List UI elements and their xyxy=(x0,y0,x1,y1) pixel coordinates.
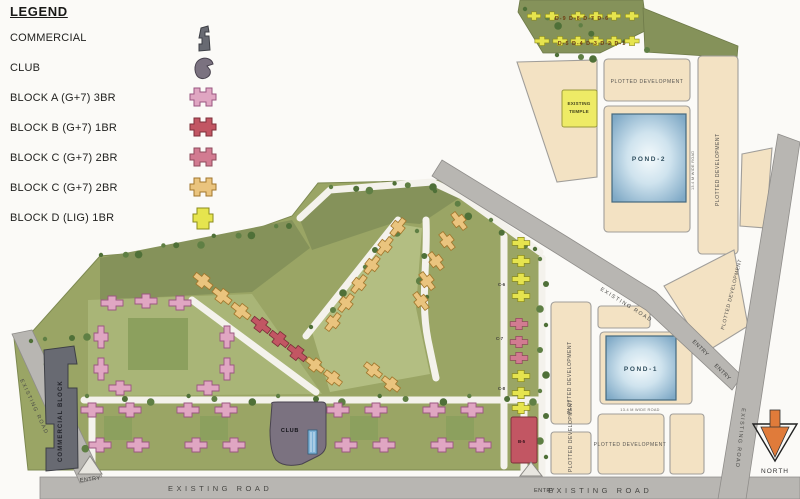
tree xyxy=(555,53,559,57)
tree xyxy=(405,182,411,188)
tree xyxy=(579,23,583,27)
block-d-icon xyxy=(186,205,222,232)
tree xyxy=(529,398,537,406)
tree xyxy=(313,396,319,402)
tree xyxy=(330,307,336,313)
plotted-development-label: PLOTTED DEVELOPMENT xyxy=(715,133,721,206)
tree xyxy=(378,394,382,398)
legend-title: LEGEND xyxy=(10,4,222,19)
wide-road-label: 13.4 M WIDE ROAD xyxy=(620,408,659,412)
tree xyxy=(309,325,313,329)
tree xyxy=(536,305,544,313)
parcel-low-right xyxy=(670,414,704,474)
existing-road-label: EXISTING ROAD xyxy=(168,484,272,493)
commercial-icon xyxy=(186,25,222,52)
legend-item-block-b: BLOCK B (G+7) 1BR xyxy=(10,113,222,143)
tree xyxy=(504,396,510,402)
club-pool xyxy=(308,430,317,454)
tree xyxy=(433,189,437,193)
commercial-block-label: COMMERCIAL BLOCK xyxy=(58,380,64,462)
tree xyxy=(554,22,562,30)
tree xyxy=(544,323,548,327)
d-block-area xyxy=(518,0,738,58)
tree xyxy=(211,396,217,402)
tree xyxy=(99,253,103,257)
tree xyxy=(543,281,549,287)
tree xyxy=(186,394,190,398)
tree xyxy=(538,389,542,393)
plotted-development-label: PLOTTED DEVELOPMENT xyxy=(611,79,684,85)
tree xyxy=(212,234,216,238)
tree xyxy=(366,187,374,195)
entry-label: ENTRY xyxy=(534,488,555,494)
tree xyxy=(85,394,89,398)
tree xyxy=(578,54,584,60)
tree xyxy=(286,223,292,229)
tree xyxy=(276,394,280,398)
tree xyxy=(467,394,471,398)
tree xyxy=(353,186,359,192)
tree xyxy=(538,257,542,261)
tree xyxy=(537,347,543,353)
legend-item-block-c: BLOCK C (G+7) 2BR xyxy=(10,143,222,173)
tree xyxy=(122,396,128,402)
tree xyxy=(274,224,278,228)
master-plan-page: EXISTING ROAD EXISTING ROAD EXISTING ROA… xyxy=(0,0,800,499)
legend-item-block-d: BLOCK D (LIG) 1BR xyxy=(10,203,222,233)
tree xyxy=(249,398,257,406)
tree xyxy=(415,229,419,233)
tree xyxy=(329,185,333,189)
tree xyxy=(403,396,409,402)
block-c8-label: C-8 xyxy=(498,386,506,391)
tree xyxy=(197,241,205,249)
tree xyxy=(644,47,650,53)
tree xyxy=(69,335,75,341)
legend-item-block-a: BLOCK A (G+7) 3BR xyxy=(10,83,222,113)
tree xyxy=(533,247,537,251)
tree xyxy=(82,445,90,453)
plotted-development-label: PLOTTED DEVELOPMENT xyxy=(568,399,574,472)
tree xyxy=(544,455,548,459)
tree xyxy=(236,233,242,239)
tree xyxy=(455,201,461,207)
tree xyxy=(421,253,427,259)
tree xyxy=(543,413,549,419)
tree xyxy=(489,218,493,222)
tree xyxy=(499,230,505,236)
tree xyxy=(135,251,143,259)
legend-item-block-c-orange: BLOCK C (G+7) 2BR xyxy=(10,173,222,203)
club-label: CLUB xyxy=(281,428,299,434)
existing-temple-label: TEMPLE xyxy=(569,109,589,114)
tree xyxy=(392,181,396,185)
block-c6-label: C-6 xyxy=(498,282,506,287)
tree xyxy=(83,333,91,341)
pond-1-label: POND-1 xyxy=(624,366,658,373)
pond-2-label: POND-2 xyxy=(632,156,666,163)
block-c-orange-icon xyxy=(186,175,222,202)
block-b-icon xyxy=(186,115,222,142)
tree xyxy=(161,243,165,247)
tree xyxy=(147,398,155,406)
legend-item-commercial: COMMERCIAL xyxy=(10,23,222,53)
tree xyxy=(339,289,347,297)
plotted-development-label: PLOTTED DEVELOPMENT xyxy=(594,442,667,448)
tree xyxy=(248,232,256,240)
existing-road-label: EXISTING ROAD xyxy=(548,486,652,495)
existing-temple-label: EXISTING xyxy=(567,101,590,106)
north-arrow xyxy=(753,410,797,461)
bottom-existing-road xyxy=(40,477,800,499)
legend-item-club: CLUB xyxy=(10,53,222,83)
tree xyxy=(123,252,129,258)
tree xyxy=(542,371,550,379)
north-label: NORTH xyxy=(761,468,789,475)
tree xyxy=(29,339,33,343)
tree xyxy=(589,55,597,63)
legend: LEGEND COMMERCIAL CLUB BLOCK A (G+7) 3BR… xyxy=(10,2,222,233)
wide-road-label: 13.4 M WIDE ROAD xyxy=(691,151,695,190)
d-blocks-top-row-labels: D-9 D-8 D-7 D-6 xyxy=(555,16,609,22)
block-c7-label: C-7 xyxy=(496,336,504,341)
tree xyxy=(43,337,47,341)
block-a-icon xyxy=(186,85,222,112)
tree xyxy=(440,398,448,406)
club-icon xyxy=(186,55,222,82)
tree xyxy=(588,31,594,37)
block-c-icon xyxy=(186,145,222,172)
tree xyxy=(173,242,179,248)
d-blocks-bottom-row-labels: D-5 D-4 D-3 D-2 D-1 xyxy=(558,41,626,47)
tree xyxy=(523,7,527,11)
block-b5-label: B-5 xyxy=(518,439,526,444)
